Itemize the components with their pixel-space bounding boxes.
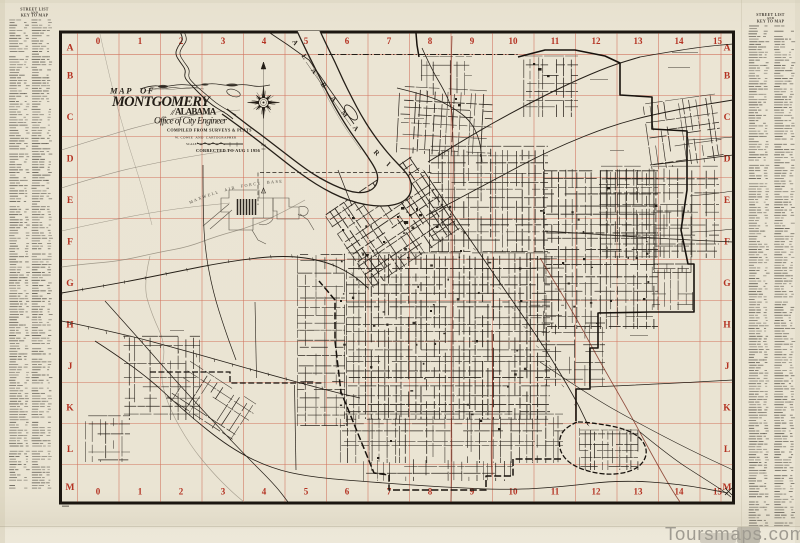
svg-text:B: B [724,72,731,82]
svg-text:E: E [67,196,73,206]
svg-text:J: J [725,362,730,372]
svg-text:3: 3 [221,36,226,46]
svg-text:12: 12 [592,36,602,46]
svg-text:14: 14 [675,487,685,497]
svg-text:6: 6 [345,487,350,497]
svg-text:11: 11 [551,487,560,497]
svg-text:5: 5 [304,487,309,497]
svg-text:CORRECTED TO AUG 1 1956: CORRECTED TO AUG 1 1956 [196,148,261,153]
svg-text:12: 12 [592,487,602,497]
svg-text:13: 13 [634,36,644,46]
svg-text:K: K [66,404,74,414]
svg-text:8: 8 [428,36,433,46]
svg-text:SCALE: SCALE [186,142,197,146]
svg-text:M: M [66,483,75,493]
svg-text:J: J [68,362,73,372]
svg-text:L: L [67,445,73,455]
svg-text:C: C [67,113,74,123]
svg-text:COMPILED FROM SURVEYS & PLATS: COMPILED FROM SURVEYS & PLATS [167,128,252,133]
svg-text:W. COWIE AND CARTOGRAPHER: W. COWIE AND CARTOGRAPHER [175,136,237,140]
svg-text:ALABAMA: ALABAMA [175,107,217,117]
svg-text:7: 7 [387,36,392,46]
svg-text:8: 8 [428,487,433,497]
svg-text:C: C [724,113,731,123]
svg-text:KEY TO MAP: KEY TO MAP [757,19,785,23]
svg-text:10: 10 [509,487,519,497]
svg-text:5: 5 [304,36,309,46]
svg-text:15: 15 [713,36,723,46]
svg-text:0: 0 [96,36,101,46]
svg-text:0: 0 [96,487,101,497]
svg-text:B: B [67,72,74,82]
svg-text:E: E [724,196,730,206]
svg-text:3: 3 [221,487,226,497]
svg-text:H: H [723,321,731,331]
svg-text:L: L [724,445,730,455]
svg-text:A: A [67,44,74,54]
svg-text:G: G [66,279,74,289]
svg-text:1: 1 [138,36,143,46]
svg-text:6: 6 [345,36,350,46]
svg-text:14: 14 [675,36,685,46]
svg-text:9: 9 [470,36,475,46]
svg-text:1: 1 [138,487,143,497]
svg-text:D: D [67,155,74,165]
svg-text:Toursmaps.com: Toursmaps.com [665,523,800,543]
svg-text:11: 11 [551,36,560,46]
svg-text:Office of City Engineer: Office of City Engineer [154,116,227,127]
svg-text:G: G [723,279,731,289]
svg-text:10: 10 [509,36,519,46]
svg-text:F: F [67,238,73,248]
svg-text:F: F [724,238,730,248]
svg-text:4: 4 [262,36,267,46]
svg-text:K: K [723,404,731,414]
svg-text:KEY TO MAP: KEY TO MAP [21,14,49,18]
svg-text:2: 2 [179,487,184,497]
svg-text:13: 13 [634,487,644,497]
svg-text:4: 4 [262,487,267,497]
